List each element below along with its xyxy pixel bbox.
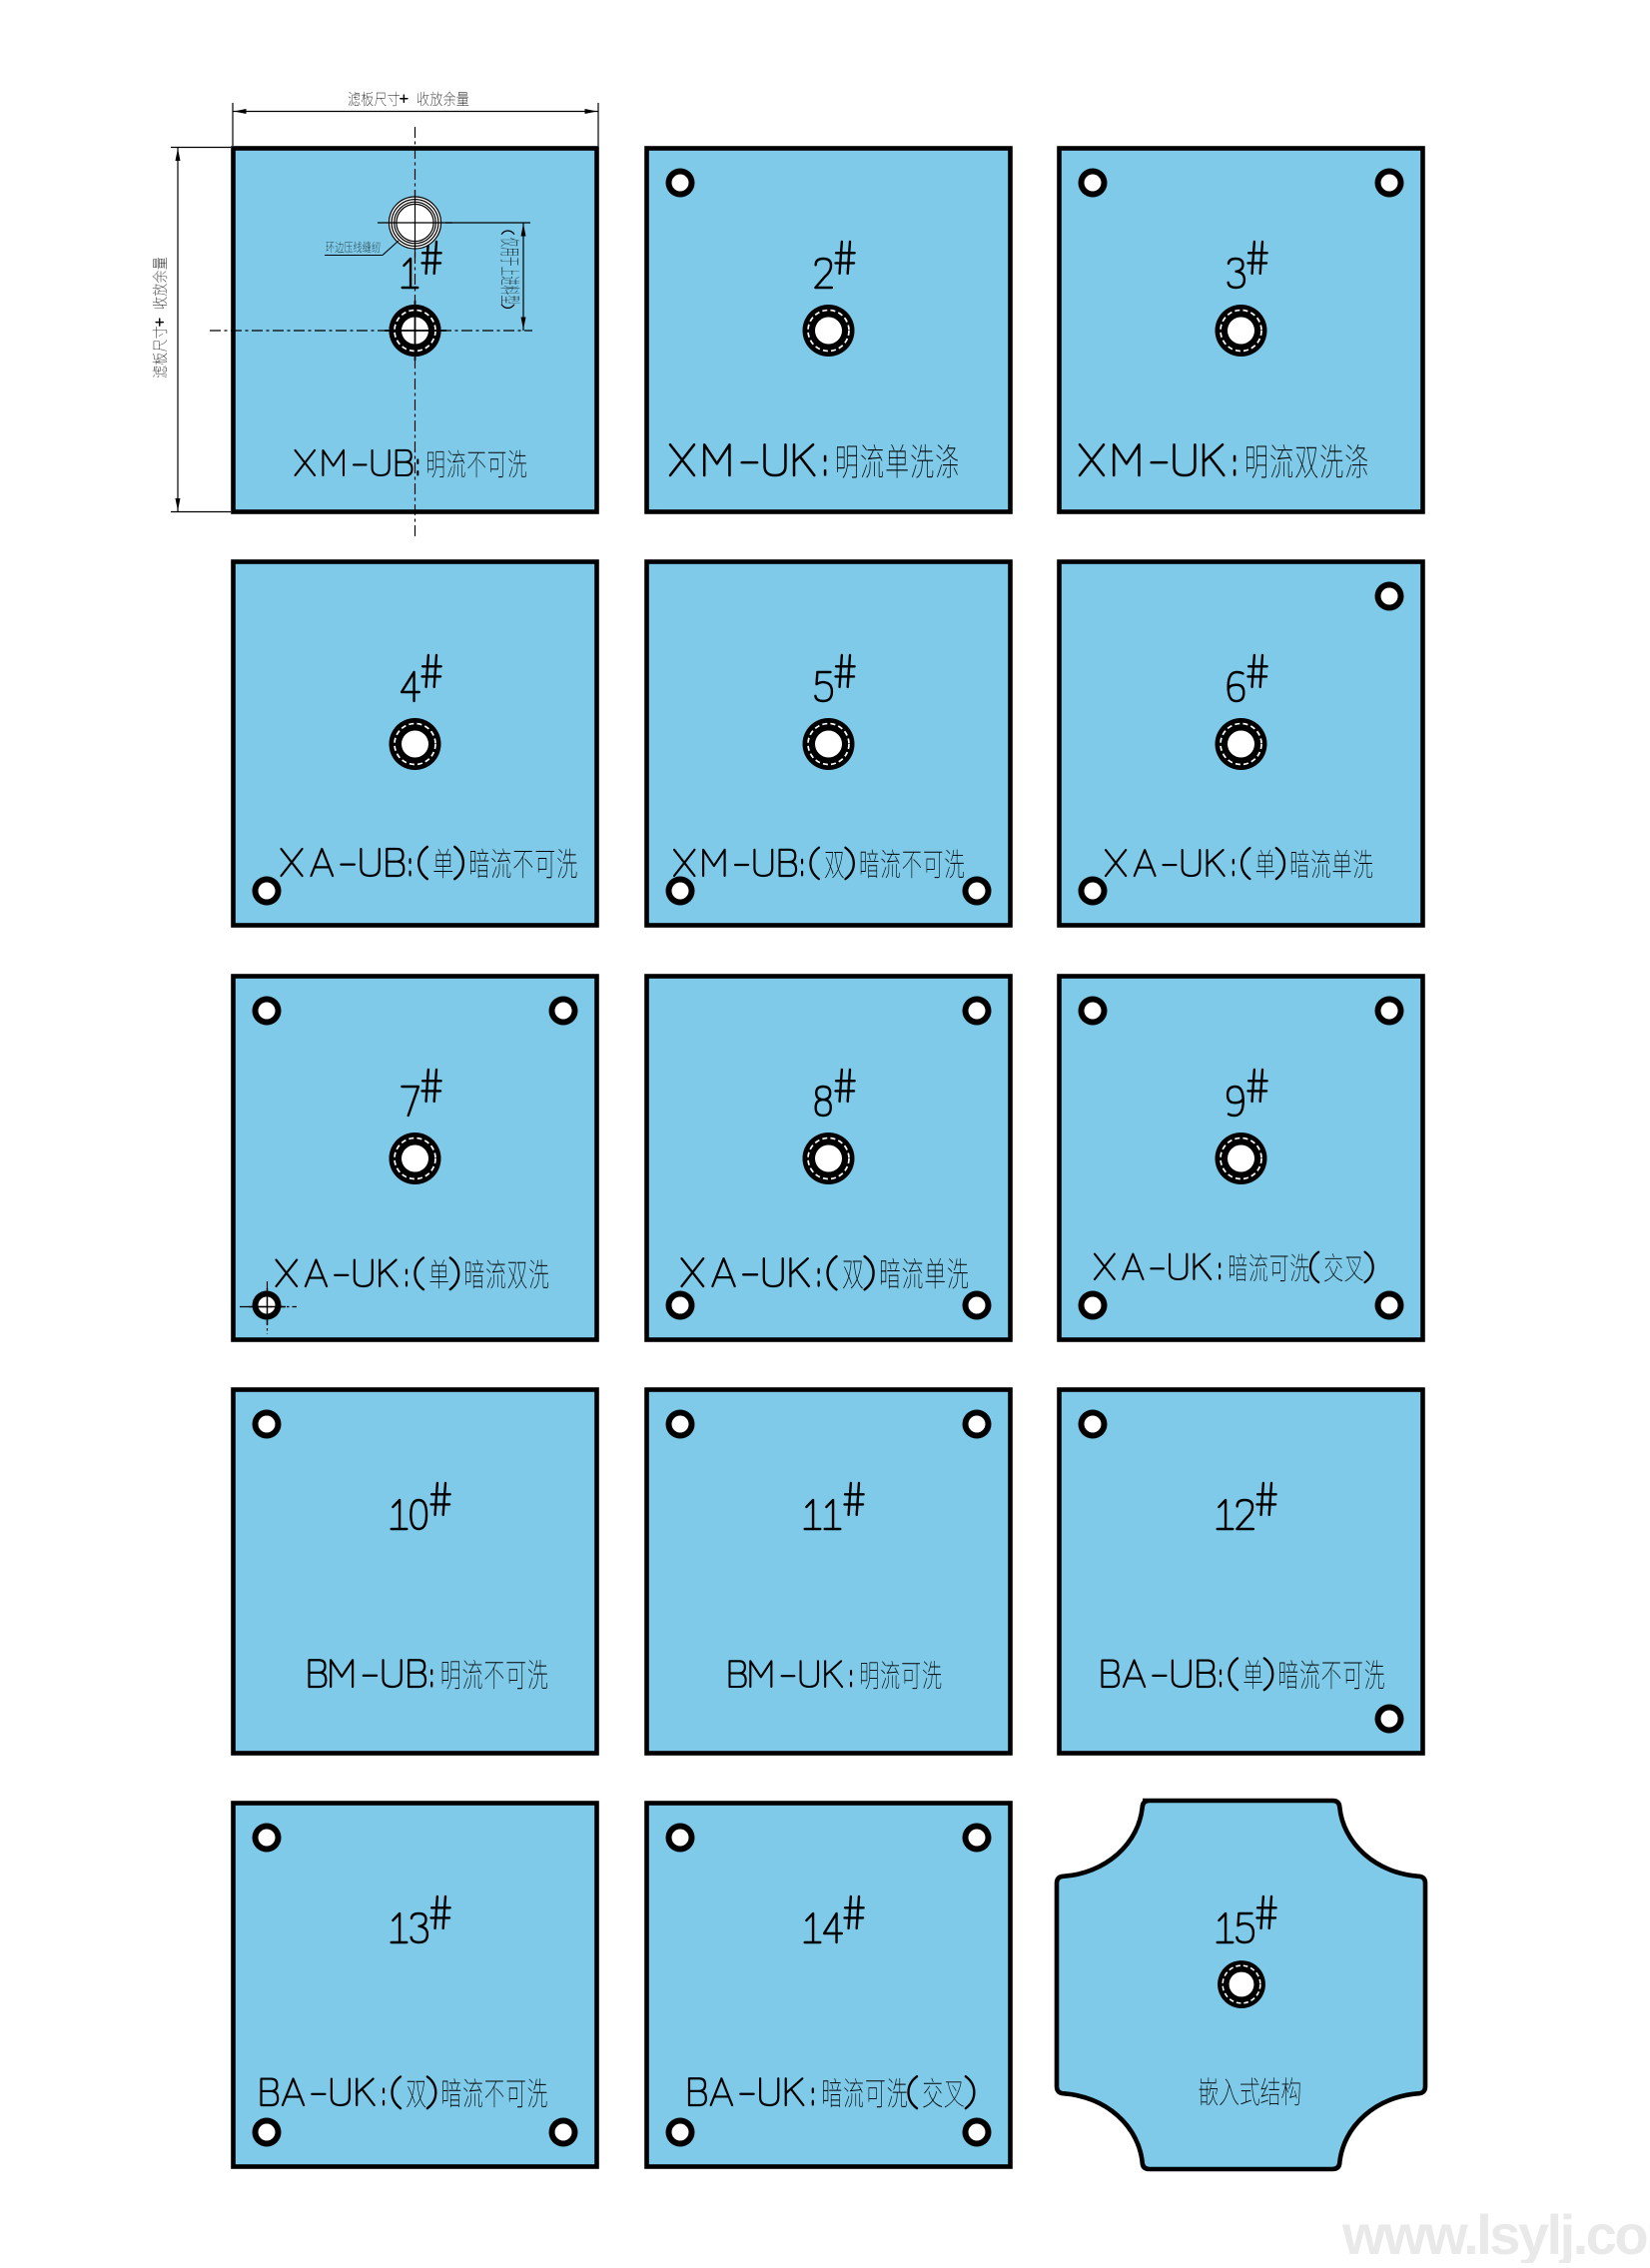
svg-text:www.lsylj.com: www.lsylj.com — [1341, 2203, 1650, 2263]
